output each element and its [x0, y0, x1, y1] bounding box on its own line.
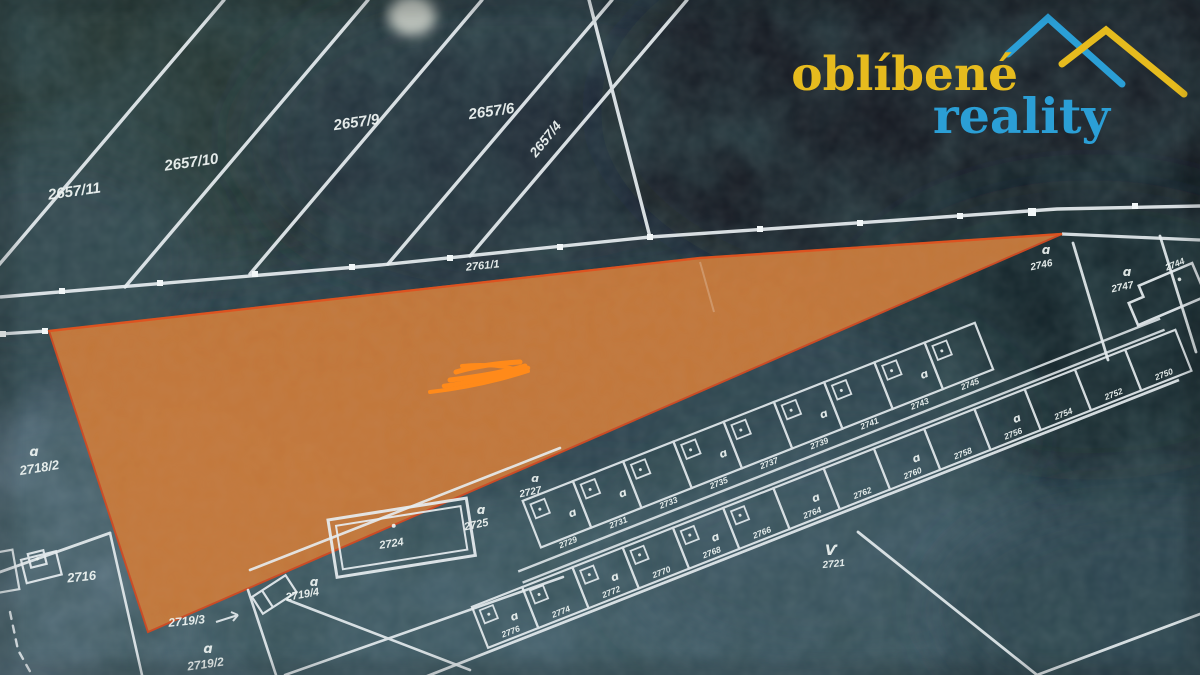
survey-dot [59, 288, 65, 294]
survey-dot [857, 220, 863, 226]
survey-dot [647, 234, 653, 240]
survey-dot [447, 255, 453, 261]
orchard-symbol: ɑ [203, 642, 212, 657]
orchard-symbol: ɑ [531, 472, 539, 485]
parcel-label-2716: 2716 [65, 567, 97, 585]
survey-dot [557, 244, 563, 250]
survey-dot [157, 280, 163, 286]
survey-dot [957, 213, 963, 219]
survey-dot [252, 271, 258, 277]
survey-dot [757, 226, 763, 232]
orchard-symbol: ɑ [29, 445, 38, 460]
survey-dot [349, 264, 355, 270]
cadastral-map-canvas: ɑ ɑ ɑ ɑ ɑ 2729 2731 2733 2735 2737 2739 … [0, 0, 1200, 675]
scrub-symbol: Ѵ [825, 543, 838, 559]
orchard-symbol: ɑ [477, 503, 486, 517]
orchard-symbol: ɑ [1123, 265, 1132, 279]
survey-dot [1028, 208, 1036, 216]
survey-dot [42, 328, 48, 334]
cadastral-map-screenshot: ɑ ɑ ɑ ɑ ɑ 2729 2731 2733 2735 2737 2739 … [0, 0, 1200, 675]
survey-dot [1132, 203, 1138, 209]
orchard-symbol: ɑ [1042, 243, 1051, 257]
logo-word-reality: reality [933, 87, 1112, 145]
